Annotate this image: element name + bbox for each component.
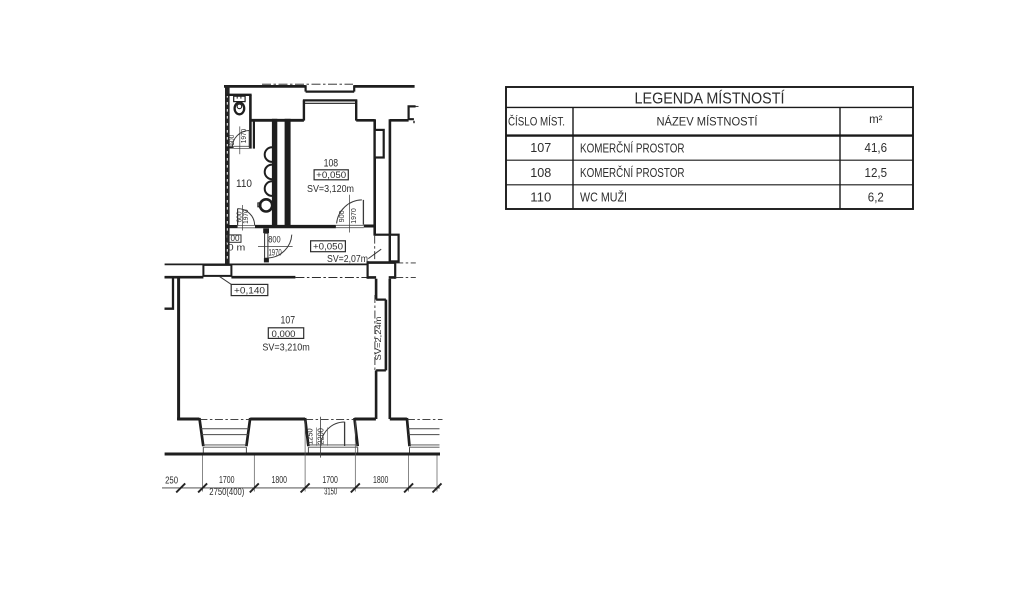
svg-text:0 m: 0 m [228,243,246,253]
svg-text:800: 800 [268,234,280,244]
svg-text:107: 107 [281,315,296,327]
svg-text:SV=3,210m: SV=3,210m [262,343,310,354]
svg-text:SV=2,24m: SV=2,24m [373,317,383,361]
svg-text:1970: 1970 [349,208,358,224]
svg-text:600: 600 [227,135,236,146]
svg-text:110: 110 [530,190,551,204]
svg-text:ČÍSLO MÍST.: ČÍSLO MÍST. [508,116,565,129]
svg-text:1970: 1970 [269,247,282,257]
svg-text:2750(400): 2750(400) [209,487,244,498]
svg-text:1970: 1970 [243,209,250,224]
svg-text:0,000: 0,000 [272,329,296,340]
svg-text:KOMERČNÍ PROSTOR: KOMERČNÍ PROSTOR [580,141,685,156]
svg-text:SV=3,120m: SV=3,120m [307,184,354,195]
svg-text:1700: 1700 [219,475,235,486]
svg-text:+0,140: +0,140 [234,285,265,296]
svg-text:m²: m² [869,114,883,126]
svg-text:6,2: 6,2 [868,190,884,204]
svg-text:110: 110 [236,178,252,190]
svg-text:1800: 1800 [373,475,389,486]
svg-text:108: 108 [324,157,339,169]
svg-text:+0,050: +0,050 [313,242,343,253]
svg-text:41,6: 41,6 [865,141,888,155]
svg-text:NÁZEV MÍSTNOSTÍ: NÁZEV MÍSTNOSTÍ [657,116,759,129]
svg-text:LEGENDA MÍSTNOSTÍ: LEGENDA MÍSTNOSTÍ [635,89,785,108]
svg-text:108: 108 [530,166,551,180]
svg-text:107: 107 [530,141,551,155]
svg-text:3150: 3150 [324,487,337,498]
svg-text:+0,050: +0,050 [316,170,346,181]
svg-text:900: 900 [337,210,346,222]
svg-text:2200: 2200 [317,428,326,445]
svg-text:1250: 1250 [306,428,315,445]
svg-text:250: 250 [165,475,178,486]
svg-text:SV=2,07m: SV=2,07m [327,254,368,265]
svg-text:1700: 1700 [322,475,338,486]
svg-text:KOMERČNÍ PROSTOR: KOMERČNÍ PROSTOR [580,165,685,180]
svg-text:12,5: 12,5 [865,166,888,180]
svg-text:WC MUŽI: WC MUŽI [580,190,627,205]
svg-text:1970: 1970 [239,129,248,144]
svg-text:1800: 1800 [272,475,288,486]
